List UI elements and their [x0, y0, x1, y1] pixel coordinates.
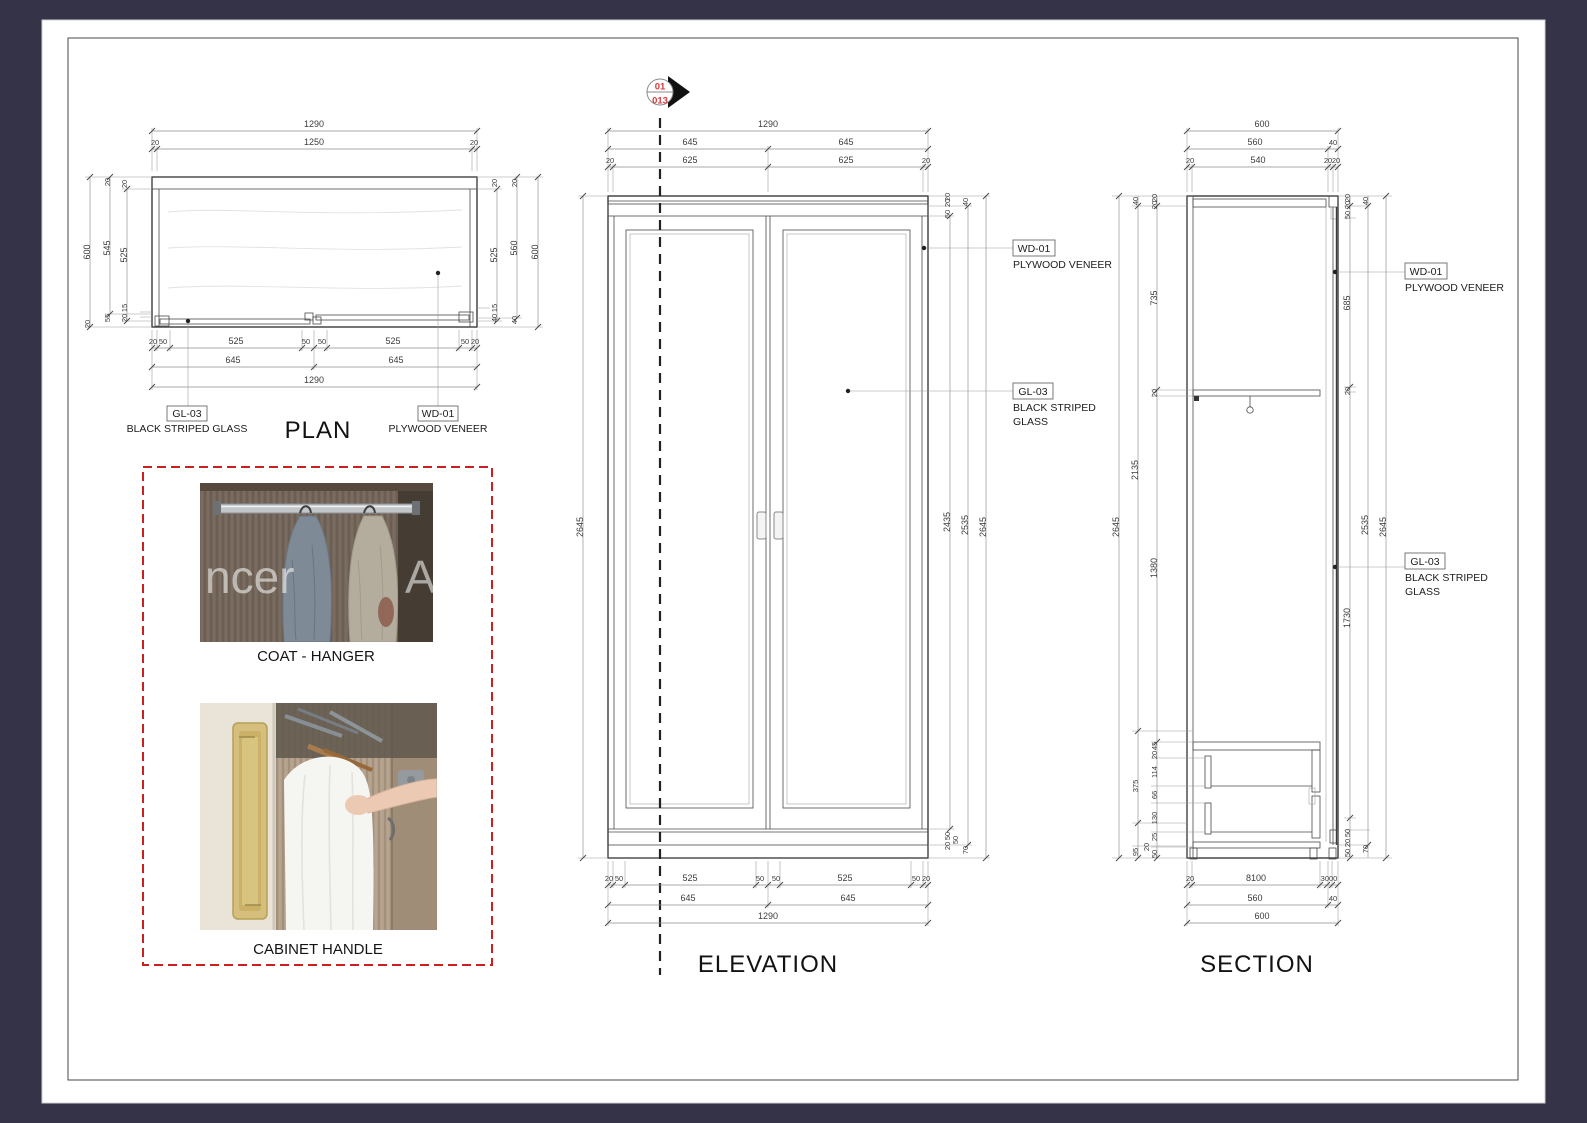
dim-label: 55 — [103, 314, 112, 322]
leader-dot — [186, 319, 190, 323]
app-root: { "sheet": {"bg": "#343348", "page": "#f… — [0, 0, 1587, 1123]
dim-label: 20 — [470, 138, 478, 147]
dim-label: 20 — [149, 337, 157, 346]
dim-label: 560 — [1247, 893, 1262, 903]
material-name: GLASS — [1405, 586, 1440, 598]
dim-label: 600 — [530, 244, 540, 259]
dim-label: 20 — [1332, 156, 1340, 165]
dim-label: 600 — [82, 244, 92, 259]
dim-label: 50 — [159, 337, 167, 346]
dim-label: 66 — [1150, 791, 1159, 799]
dim-label: 40 — [1361, 197, 1370, 205]
dim-label: 20 — [103, 178, 112, 186]
dim-label: 70 — [961, 846, 970, 854]
dim-label: 625 — [838, 155, 853, 165]
dim-label: 50 — [756, 874, 764, 883]
dim-label: 20 — [1343, 387, 1352, 395]
door-handle-right — [774, 512, 783, 539]
dim-label: 20 — [922, 156, 930, 165]
coat-hanger-caption: COAT - HANGER — [257, 648, 375, 665]
dim-label: 525 — [837, 873, 852, 883]
dim-label: 20 — [606, 156, 614, 165]
dim-label: 2535 — [1360, 515, 1370, 535]
dim-label: 1730 — [1342, 608, 1352, 628]
dim-label: 20 — [1150, 751, 1159, 759]
material-code: WD-01 — [1410, 266, 1443, 278]
material-code: GL-03 — [172, 408, 201, 420]
shelf-support — [1194, 396, 1199, 401]
dim-label: 2645 — [575, 517, 585, 537]
dim-label: 525 — [119, 247, 129, 262]
material-code: GL-03 — [1018, 386, 1047, 398]
dim-label: 20 — [943, 193, 952, 201]
dim-label: 20 — [922, 874, 930, 883]
marker-number: 01 — [655, 82, 666, 93]
dim-label: 20 — [83, 320, 92, 328]
elevation-title: ELEVATION — [698, 951, 838, 978]
dim-label: 15 — [490, 304, 499, 312]
material-name: GLASS — [1013, 416, 1048, 428]
dim-label: 525 — [682, 873, 697, 883]
dim-label: 685 — [1342, 295, 1352, 310]
dim-label: 2135 — [1130, 460, 1140, 480]
dim-label: 50 — [951, 836, 960, 844]
dim-label: 560 — [1247, 137, 1262, 147]
dim-label: 525 — [228, 336, 243, 346]
dim-label: 645 — [388, 355, 403, 365]
material-code: WD-01 — [422, 408, 455, 420]
dim-label: 600 — [1254, 119, 1269, 129]
dim-label: 645 — [225, 355, 240, 365]
dim-label: 545 — [102, 240, 112, 255]
dim-label: 130 — [1150, 812, 1159, 825]
material-code: WD-01 — [1018, 243, 1051, 255]
dim-label: 114 — [1150, 766, 1159, 778]
dim-label: 50 — [1150, 850, 1159, 858]
dim-label: 40 — [490, 314, 499, 322]
dim-label: 40 — [1131, 197, 1140, 205]
leader-dot — [1333, 565, 1337, 569]
dim-label: 20 — [1343, 839, 1352, 847]
dim-label: 20 — [1150, 389, 1159, 397]
dim-label: 600 — [1254, 911, 1269, 921]
section-title: SECTION — [1200, 951, 1314, 978]
dim-label: 20 — [151, 138, 159, 147]
dim-label: 645 — [680, 893, 695, 903]
dim-label: 1290 — [758, 911, 778, 921]
dim-label: 50 — [943, 210, 952, 218]
dim-label: 50 — [912, 874, 920, 883]
dim-label: 20 — [490, 179, 499, 187]
dim-label: 45 — [1150, 742, 1159, 750]
dim-label: 50 — [318, 337, 326, 346]
dim-label: 560 — [509, 240, 519, 255]
cabinet-handle-caption: CABINET HANDLE — [253, 941, 383, 958]
dim-label: 20 — [605, 874, 613, 883]
dim-label: 645 — [838, 137, 853, 147]
dim-label: 525 — [489, 247, 499, 262]
material-name: PLYWOOD VENEER — [1013, 259, 1112, 271]
material-name: PLYWOOD VENEER — [389, 423, 488, 435]
dim-label: 40 — [961, 198, 970, 206]
dim-label: 50 — [1343, 849, 1352, 857]
dim-label: 625 — [682, 155, 697, 165]
dim-label: 20 — [1186, 156, 1194, 165]
watermark-text: A — [405, 551, 436, 603]
dim-label: 540 — [1250, 155, 1265, 165]
dim-label: 50 — [1343, 211, 1352, 219]
dim-label: 15 — [120, 304, 129, 312]
dim-label: 1380 — [1149, 558, 1159, 578]
dim-label: 20 — [120, 314, 129, 322]
dim-label: 50 — [1343, 829, 1352, 837]
dim-label: 70 — [1361, 845, 1370, 853]
dim-label: 40 — [1329, 138, 1337, 147]
dim-label: 645 — [682, 137, 697, 147]
dim-label: 50 — [772, 874, 780, 883]
dim-label: 2645 — [1378, 517, 1388, 537]
leader-dot — [846, 389, 850, 393]
dim-label: 20 — [1186, 874, 1194, 883]
material-name: BLACK STRIPED — [1013, 402, 1096, 414]
material-name: BLACK STRIPED — [1405, 572, 1488, 584]
dim-label: 2435 — [942, 512, 952, 532]
dim-label: 20 — [1343, 201, 1352, 209]
leader-dot — [436, 271, 440, 275]
dim-label: 2645 — [978, 517, 988, 537]
closet-rail — [216, 504, 418, 513]
dim-label: 20 — [471, 337, 479, 346]
dim-label: 2645 — [1111, 517, 1121, 537]
dim-label: 95 — [1131, 848, 1140, 856]
dim-label: 25 — [1150, 833, 1159, 841]
cabinet-handle-photo — [200, 703, 437, 930]
dim-label: 50 — [302, 337, 310, 346]
leader-dot — [922, 246, 926, 250]
dim-label: 3000 — [1321, 874, 1338, 883]
dim-label: 40 — [510, 316, 519, 324]
dim-label: 1250 — [304, 137, 324, 147]
dim-label: 50 — [615, 874, 623, 883]
material-name: BLACK STRIPED GLASS — [127, 423, 248, 435]
leader-dot — [1333, 270, 1337, 274]
material-code: GL-03 — [1410, 556, 1439, 568]
dim-label: 1290 — [304, 119, 324, 129]
dim-label: 735 — [1149, 290, 1159, 305]
dim-label: 525 — [385, 336, 400, 346]
dim-label: 50 — [461, 337, 469, 346]
plan-title: PLAN — [285, 417, 352, 444]
dim-label: 20 — [510, 179, 519, 187]
dim-label: 8100 — [1246, 873, 1266, 883]
drawing-sheet: 1290 20 1250 20 20 50 525 50 50 525 50 2… — [0, 0, 1587, 1123]
dim-label: 1290 — [758, 119, 778, 129]
dim-label: 20 — [120, 180, 129, 188]
dim-label: 375 — [1131, 780, 1140, 793]
dim-label: 2535 — [960, 515, 970, 535]
marker-sheet: 013 — [652, 96, 668, 107]
dim-label: 40 — [1329, 894, 1337, 903]
dim-label: 20 — [1150, 201, 1159, 209]
dim-label: 645 — [840, 893, 855, 903]
coat-hanger-photo: ncer A — [200, 483, 436, 642]
dim-label: 1290 — [304, 375, 324, 385]
door-handle-left — [757, 512, 766, 539]
watermark-text: ncer — [205, 551, 294, 603]
material-name: PLYWOOD VENEER — [1405, 282, 1504, 294]
